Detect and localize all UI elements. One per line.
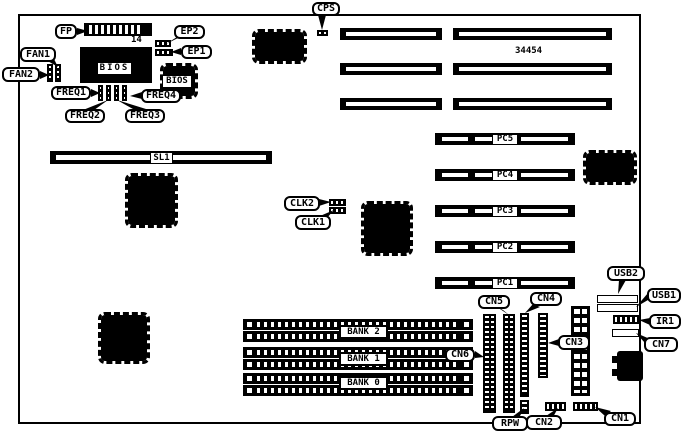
callout-fan1: FAN1: [20, 47, 56, 62]
pc1-label: PC1: [492, 278, 518, 289]
bank0-label: BANK 0: [339, 376, 388, 390]
bank2-label: BANK 2: [339, 325, 388, 339]
callout-freq3: FREQ3: [125, 109, 165, 123]
pc5-label: PC5: [492, 134, 518, 145]
pc4-label: PC4: [492, 170, 518, 181]
callout-fan2: FAN2: [2, 67, 40, 82]
callout-cn6: CN6: [445, 348, 475, 362]
callout-cps: CPS: [312, 2, 340, 16]
callout-ir1: IR1: [649, 314, 681, 329]
callout-freq1: FREQ1: [51, 86, 91, 100]
callout-cn5: CN5: [478, 295, 510, 309]
pointer-usb2: [618, 280, 626, 294]
sl1-label: SL1: [150, 152, 173, 164]
callout-freq2: FREQ2: [65, 109, 105, 123]
callout-cn1: CN1: [604, 412, 636, 426]
pointer-cn6: [475, 351, 484, 358]
bios-flash-label: BIOS: [162, 75, 192, 88]
callout-cn2: CN2: [526, 415, 562, 430]
pointer-ep1: [171, 48, 181, 55]
callout-ep2: EP2: [174, 25, 205, 39]
bios-rom-label: BIOS: [97, 62, 132, 75]
callout-cn7: CN7: [644, 337, 678, 352]
callout-fp: FP: [55, 24, 77, 39]
pointer-clk2: [319, 199, 331, 206]
callout-ep1: EP1: [181, 45, 212, 59]
callout-clk2: CLK2: [284, 196, 320, 211]
pc3-label: PC3: [492, 206, 518, 217]
callout-freq4: FREQ4: [141, 89, 181, 103]
pointer-fan2: [40, 71, 49, 79]
pointer-cps: [318, 15, 326, 30]
callout-usb2: USB2: [607, 266, 645, 281]
pointer-fp: [77, 28, 88, 35]
bank1-label: BANK 1: [339, 352, 388, 366]
motherboard-diagram: 14 BIOS BIOS 34454 SL1 PC5 PC4 PC3 PC2: [0, 0, 681, 436]
callout-cn4: CN4: [530, 292, 562, 306]
pc2-label: PC2: [492, 242, 518, 253]
callout-usb1: USB1: [647, 288, 681, 303]
pointer-freq1: [91, 89, 100, 97]
callout-clk1: CLK1: [295, 215, 331, 230]
callout-rpw: RPW: [492, 416, 528, 431]
callout-cn3: CN3: [558, 335, 590, 350]
